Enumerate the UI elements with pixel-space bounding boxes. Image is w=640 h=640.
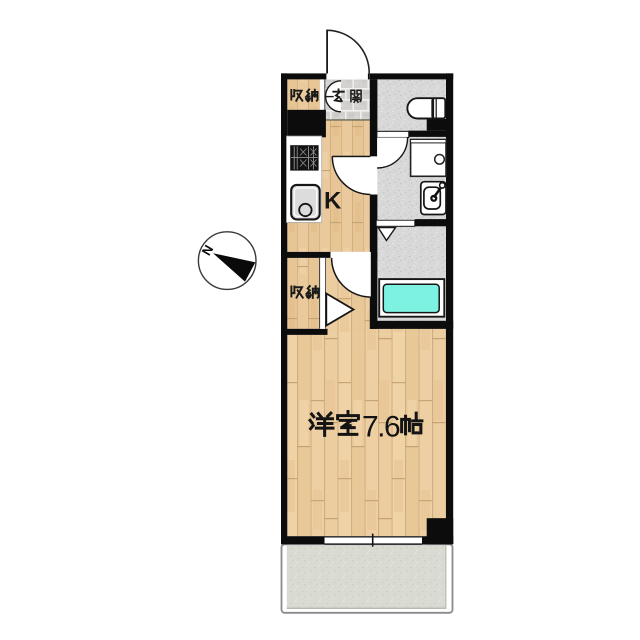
svg-text:K: K xyxy=(324,188,342,215)
svg-text:7.6: 7.6 xyxy=(362,411,400,444)
